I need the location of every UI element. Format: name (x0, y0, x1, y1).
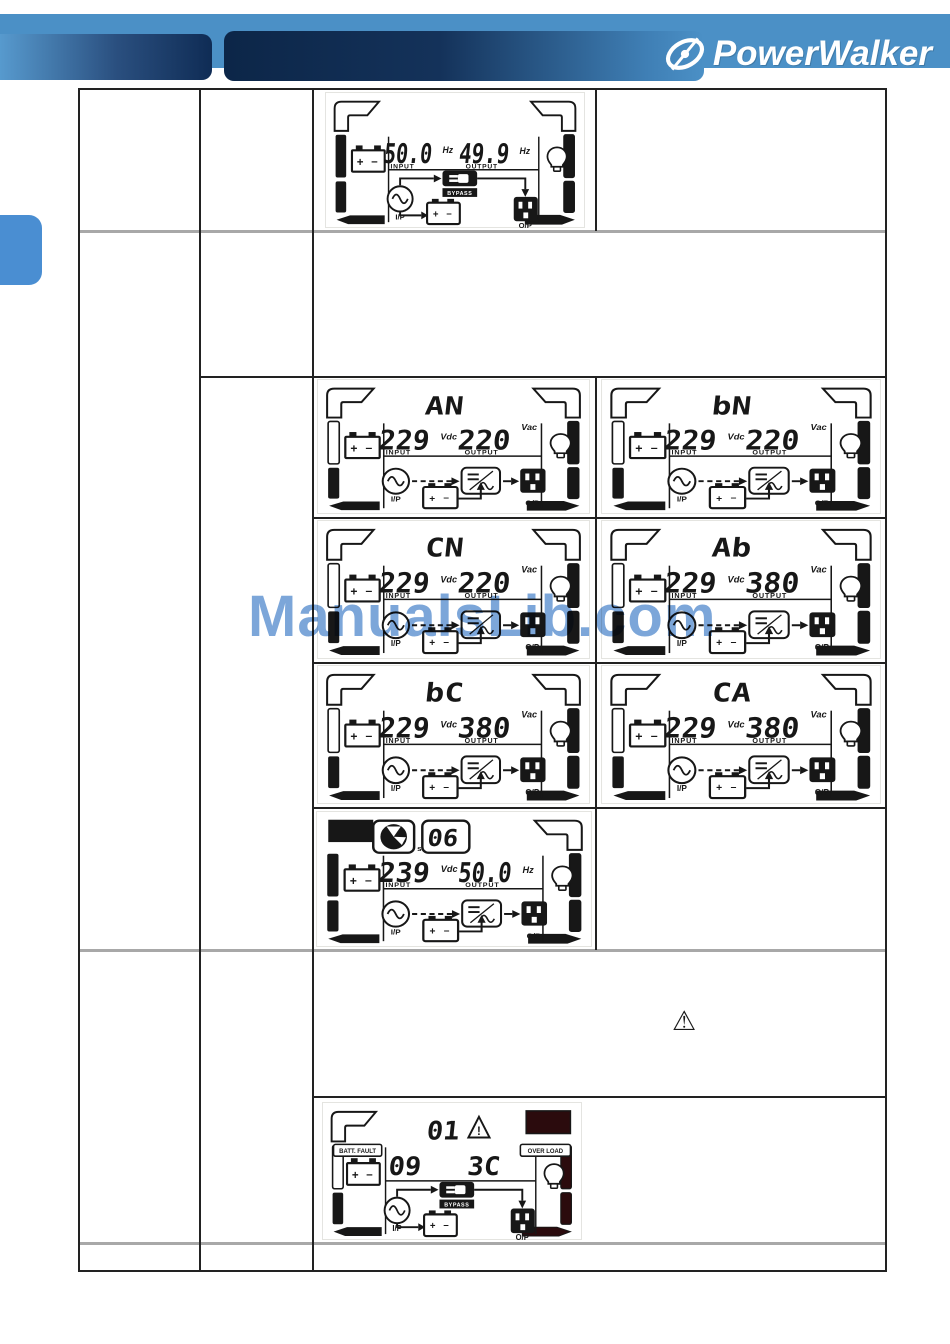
brand-text: PowerWalker (713, 34, 932, 74)
output-unit: Vac (810, 565, 826, 575)
header-accent-right (224, 31, 704, 81)
svg-text:+: + (429, 927, 435, 938)
ip-label: I/P (677, 495, 688, 504)
input-unit: Vdc (440, 720, 457, 730)
output-unit: Vac (521, 422, 537, 432)
svg-text:–: – (651, 441, 658, 454)
op-label: O/P (525, 498, 539, 507)
svg-text:–: – (446, 208, 452, 219)
input-label: INPUT (386, 882, 412, 889)
lcd-display-mode-an: 229220VdcVacINPUTOUTPUTAN +– I/P O/P +– (317, 379, 590, 514)
input-label: INPUT (672, 737, 698, 745)
output-unit: Hz (520, 146, 531, 156)
svg-text:+: + (430, 1221, 436, 1232)
manual-page: PowerWalker 50.049.9HzHzINPUTOUTPUT +– I… (0, 0, 950, 1344)
input-label: INPUT (386, 450, 411, 457)
output-unit: Vac (810, 710, 826, 720)
svg-text:BATT. FAULT: BATT. FAULT (339, 1149, 376, 1155)
grid-line (595, 376, 597, 950)
side-tab (0, 215, 42, 285)
input-unit: Vdc (440, 432, 457, 442)
lcd-display-shutdown-timer: 23950.0VdcHzINPUTOUTPUT s06 +– I/P O/P (316, 811, 592, 947)
svg-text:+: + (716, 494, 722, 505)
svg-text:!: ! (477, 1125, 481, 1138)
svg-text:–: – (651, 729, 658, 743)
output-label: OUTPUT (752, 450, 787, 457)
mode-code: AN (424, 392, 466, 421)
svg-text:+: + (357, 156, 364, 169)
svg-text:–: – (365, 873, 372, 887)
grid-line (595, 88, 597, 231)
output-label: OUTPUT (752, 592, 787, 600)
svg-text:+: + (716, 783, 722, 794)
grid-line (78, 88, 80, 1272)
ip-label: I/P (391, 784, 402, 793)
brand-swoosh-icon (663, 32, 707, 76)
op-label: O/P (815, 643, 830, 652)
lcd-display-mode-bc: 229380VdcVacINPUTOUTPUTbC +– I/P O/P +– (317, 665, 590, 804)
header-bar: PowerWalker (0, 14, 950, 68)
svg-text:–: – (443, 493, 449, 504)
battery-flow-icon: +– (427, 199, 460, 224)
bypass-label: BYPASS (444, 1202, 469, 1208)
mode-code: Ab (710, 533, 753, 563)
output-label: OUTPUT (465, 738, 499, 745)
powerwalker-logo: PowerWalker (663, 32, 932, 76)
svg-text:+: + (352, 1169, 359, 1182)
mode-code: bC (424, 679, 466, 709)
output-label: OUTPUT (752, 737, 787, 745)
fault-top-code: 01 (425, 1115, 461, 1145)
battery-status-icon: +– (352, 145, 385, 171)
battery-status-icon: +– (345, 720, 379, 747)
grid-line (199, 88, 201, 1272)
grid-line (312, 88, 314, 1272)
lcd-display-bypass-frequency: 50.049.9HzHzINPUTOUTPUT +– I/P BYPASS O/… (325, 92, 585, 228)
fault-left-code: 09 (387, 1151, 423, 1181)
svg-text:–: – (443, 782, 449, 793)
svg-text:–: – (366, 441, 373, 455)
grid-line (312, 807, 886, 809)
svg-text:+: + (433, 209, 439, 220)
output-unit: Vac (521, 565, 537, 575)
over-load-label: OVER LOAD (520, 1144, 570, 1156)
grid-line (199, 376, 886, 378)
input-label: INPUT (386, 738, 411, 745)
output-label: OUTPUT (466, 163, 498, 170)
lcd-display-mode-bn: 229220VdcVacINPUTOUTPUTbN +– I/P O/P +– (601, 379, 881, 514)
op-label: O/P (516, 1233, 529, 1240)
ip-label: I/P (391, 495, 401, 504)
bypass-plug-icon: BYPASS (439, 1182, 474, 1209)
battery-status-icon: +– (345, 864, 380, 890)
mode-code: bN (710, 393, 753, 422)
input-unit: Hz (442, 145, 453, 155)
op-label: O/P (519, 221, 532, 228)
output-label: OUTPUT (465, 882, 499, 889)
input-unit: Vdc (728, 432, 745, 442)
svg-text:–: – (366, 1168, 373, 1181)
svg-text:–: – (366, 729, 373, 743)
battery-flow-icon: +– (424, 1210, 457, 1236)
bypass-plug-icon: BYPASS (442, 171, 477, 197)
battery-status-icon: +– (345, 432, 379, 458)
svg-text:+: + (429, 494, 435, 505)
output-unit: Hz (522, 865, 534, 875)
batt-fault-label: BATT. FAULT (334, 1144, 382, 1156)
svg-text:–: – (731, 782, 737, 793)
svg-text:+: + (635, 730, 642, 744)
op-label: O/P (815, 788, 830, 797)
battery-flow-icon: +– (710, 483, 745, 508)
grid-line (312, 1096, 886, 1098)
op-label: O/P (525, 788, 540, 797)
input-label: INPUT (672, 450, 698, 457)
countdown-value: 06 (426, 825, 460, 852)
svg-text:–: – (371, 155, 378, 168)
battery-flow-icon: +– (423, 916, 458, 941)
battery-flow-icon: +– (423, 483, 457, 508)
bypass-label: BYPASS (447, 191, 472, 197)
svg-text:–: – (731, 637, 737, 648)
op-label: O/P (815, 499, 830, 508)
input-unit: Vdc (441, 864, 458, 874)
svg-text:+: + (350, 874, 357, 888)
battery-status-icon: +– (630, 432, 665, 458)
warning-icon: ⚠ (672, 1008, 696, 1035)
output-unit: Vac (810, 422, 826, 432)
output-label: OUTPUT (465, 450, 499, 457)
input-unit: Vdc (728, 575, 745, 585)
clock-icon (373, 821, 414, 853)
svg-text:OVER LOAD: OVER LOAD (528, 1149, 564, 1155)
grid-line (312, 517, 886, 519)
svg-text:–: – (443, 1220, 449, 1231)
fault-right-code: 3C (466, 1151, 502, 1181)
svg-text:–: – (444, 926, 450, 937)
lcd-display-mode-ca: 229380VdcVacINPUTOUTPUTCA +– I/P O/P +– (601, 665, 881, 804)
ip-label: I/P (391, 928, 402, 937)
svg-text:+: + (716, 638, 722, 649)
input-unit: Vdc (728, 720, 745, 730)
mode-code: CA (710, 678, 753, 708)
output-unit: Vac (521, 710, 537, 720)
battery-flow-icon: +– (423, 772, 457, 798)
input-label: INPUT (390, 163, 414, 170)
svg-text:+: + (429, 783, 435, 794)
battery-status-icon: +– (630, 720, 665, 747)
svg-text:–: – (731, 493, 737, 504)
battery-status-icon: +– (347, 1158, 380, 1185)
battery-flow-icon: +– (710, 772, 745, 798)
grid-line (312, 662, 886, 664)
ip-label: I/P (677, 784, 688, 793)
op-label: O/P (527, 931, 542, 940)
mode-code: CN (424, 534, 466, 564)
svg-text:+: + (350, 442, 357, 456)
grid-line (885, 88, 887, 1272)
svg-text:+: + (635, 442, 642, 455)
watermark: ManualsLib.com (248, 583, 716, 650)
lcd-display-fault: 01 !093C BATT. FAULT OVER LOAD +– I/P BY… (322, 1102, 582, 1240)
svg-text:+: + (350, 730, 357, 744)
header-accent-left (0, 34, 212, 80)
